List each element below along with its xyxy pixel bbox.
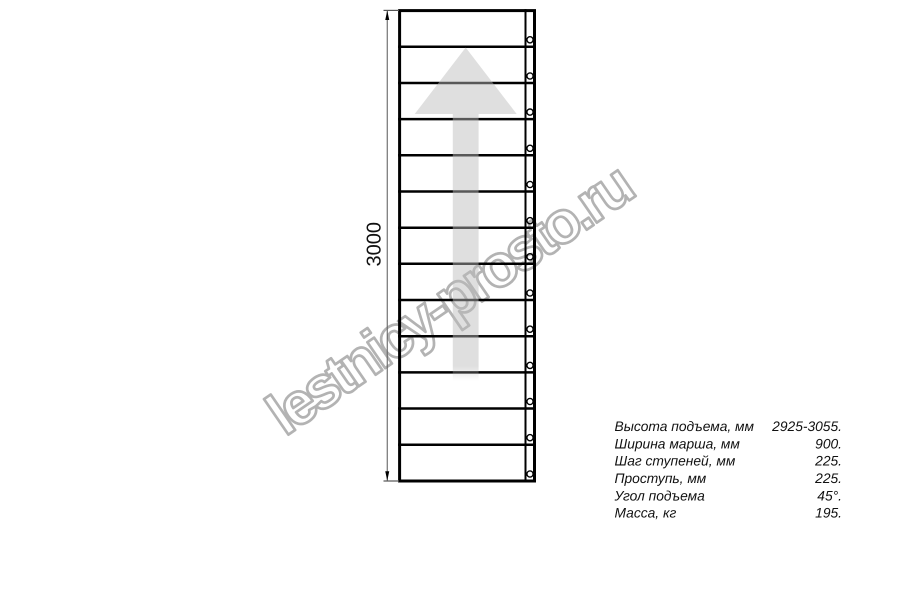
svg-text:3000: 3000: [364, 222, 386, 267]
svg-text:Высота подъема, мм: Высота подъема, мм: [615, 419, 755, 434]
svg-text:195.: 195.: [815, 506, 842, 521]
svg-text:Масса, кг: Масса, кг: [615, 506, 677, 521]
svg-text:Проступь, мм: Проступь, мм: [615, 471, 707, 486]
svg-text:45°.: 45°.: [817, 488, 842, 503]
svg-text:Шаг ступеней, мм: Шаг ступеней, мм: [615, 454, 736, 469]
svg-text:2925-3055.: 2925-3055.: [771, 419, 842, 434]
svg-text:900.: 900.: [815, 436, 842, 451]
svg-text:Ширина марша, мм: Ширина марша, мм: [615, 436, 741, 451]
svg-text:225.: 225.: [814, 471, 842, 486]
svg-text:Угол подъема: Угол подъема: [614, 488, 706, 503]
svg-text:225.: 225.: [814, 454, 842, 469]
